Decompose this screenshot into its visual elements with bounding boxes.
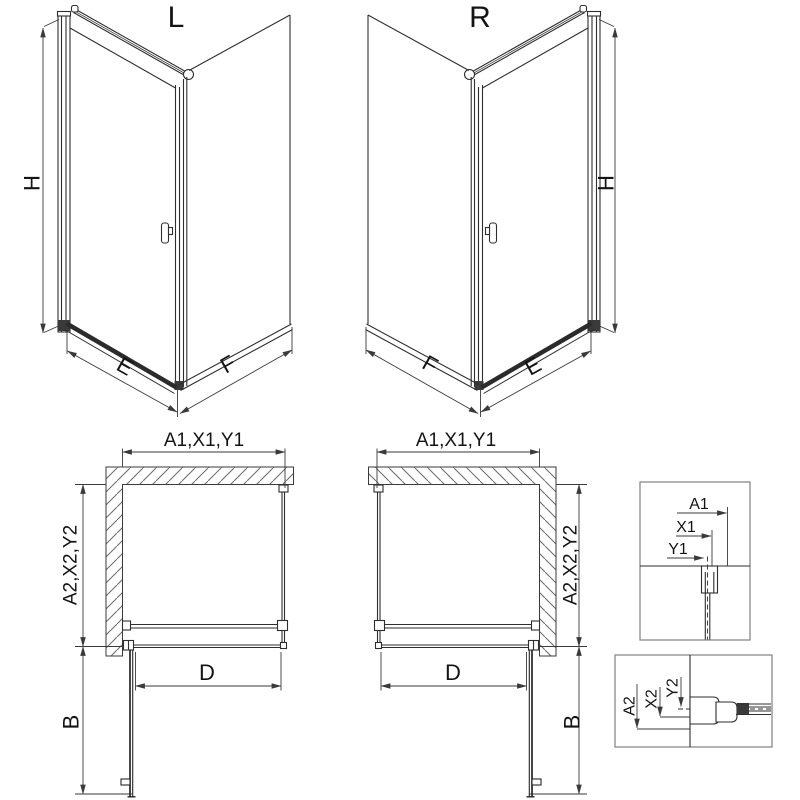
clear-width-label-right: D [445,660,461,685]
detail-label-x2: X2 [644,689,661,709]
plan-top-dim-label-right: A1,X1,Y1 [416,430,496,451]
detail-label-y2: Y2 [665,678,682,698]
detail-label-y1: Y1 [668,541,688,558]
dim-label-e-left: E [113,352,138,381]
variant-label-left: L [168,1,185,34]
perspective-view-right: R H E F [366,1,619,417]
detail-label-a1: A1 [689,496,709,513]
door-open-depth-label-right: B [560,715,585,730]
plan-top-dim-label-left: A1,X1,Y1 [164,430,244,451]
technical-drawing: L H E F R H E F A1,X1,Y1 A2,X2,Y2 D B A1… [0,0,800,800]
plan-side-dim-label-left: A2,X2,Y2 [61,525,82,605]
plan-side-dim-label-right: A2,X2,Y2 [561,525,582,605]
clear-width-label-left: D [199,660,215,685]
detail-label-x1: X1 [676,519,696,536]
perspective-view-left: L H E F [20,1,293,417]
detail-label-a2: A2 [622,696,639,716]
detail-box-vertical-dims: A2 X2 Y2 [615,655,772,747]
dim-label-e-right: E [520,352,545,381]
door-open-depth-label-left: B [59,715,84,730]
dim-label-h-right: H [594,175,619,191]
variant-label-right: R [469,1,491,34]
dim-label-h-left: H [20,175,45,191]
detail-box-horizontal-dims: A1 X1 Y1 [640,482,750,640]
plan-view-right: A1,X1,Y1 A2,X2,Y2 D B [369,430,588,797]
plan-view-left: A1,X1,Y1 A2,X2,Y2 D B [59,430,294,797]
spec-sheet-page: L H E F R H E F A1,X1,Y1 A2,X2,Y2 D B A1… [0,0,800,800]
